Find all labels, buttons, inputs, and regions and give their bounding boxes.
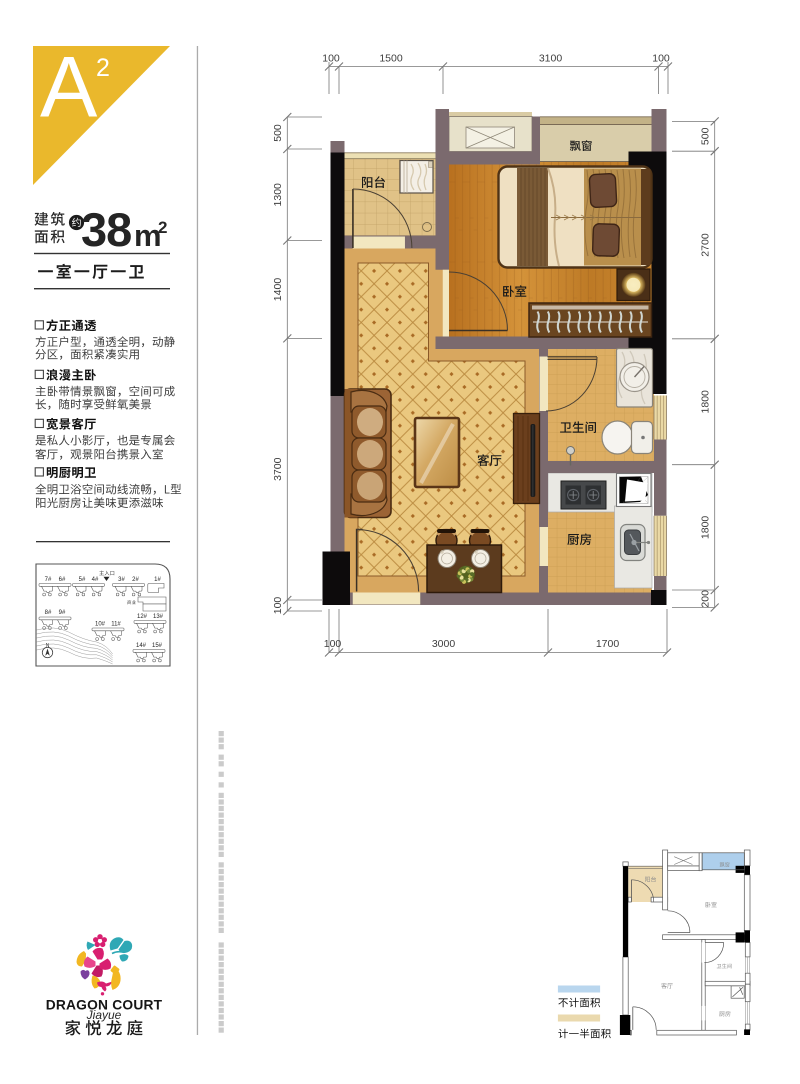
svg-text:100: 100 — [652, 53, 670, 65]
svg-text:8#: 8# — [45, 610, 52, 616]
svg-text:Jiayue: Jiayue — [86, 1008, 122, 1022]
svg-text:2: 2 — [158, 218, 167, 237]
svg-text:3#: 3# — [118, 577, 125, 583]
svg-text:38: 38 — [81, 203, 131, 256]
svg-text:1400: 1400 — [272, 278, 284, 302]
svg-text:100: 100 — [272, 597, 284, 615]
svg-text:200: 200 — [700, 590, 712, 608]
svg-text:14#: 14# — [136, 643, 147, 649]
svg-text:2700: 2700 — [700, 233, 712, 257]
svg-text:13#: 13# — [153, 614, 164, 620]
svg-text:500: 500 — [272, 124, 284, 142]
svg-text:1#: 1# — [154, 577, 161, 583]
svg-text:3000: 3000 — [432, 638, 456, 650]
svg-text:A: A — [40, 40, 98, 136]
svg-text:3100: 3100 — [539, 53, 563, 65]
svg-text:9#: 9# — [59, 610, 66, 616]
svg-text:500: 500 — [700, 127, 712, 145]
svg-text:100: 100 — [322, 53, 340, 65]
svg-text:10#: 10# — [95, 622, 106, 628]
svg-text:2#: 2# — [132, 577, 139, 583]
svg-text:1300: 1300 — [272, 183, 284, 207]
svg-text:1800: 1800 — [700, 516, 712, 540]
svg-text:1800: 1800 — [700, 390, 712, 414]
svg-text:100: 100 — [324, 638, 342, 650]
svg-text:6#: 6# — [59, 577, 66, 583]
svg-text:4#: 4# — [92, 577, 99, 583]
svg-text:N: N — [46, 643, 50, 649]
svg-text:15#: 15# — [152, 643, 163, 649]
svg-text:1700: 1700 — [596, 638, 620, 650]
svg-text:1500: 1500 — [379, 53, 403, 65]
svg-text:11#: 11# — [111, 622, 121, 628]
svg-text:5#: 5# — [79, 577, 86, 583]
svg-text:3700: 3700 — [272, 457, 284, 481]
svg-text:2: 2 — [96, 54, 110, 82]
svg-text:12#: 12# — [137, 614, 148, 620]
svg-text:7#: 7# — [45, 577, 52, 583]
